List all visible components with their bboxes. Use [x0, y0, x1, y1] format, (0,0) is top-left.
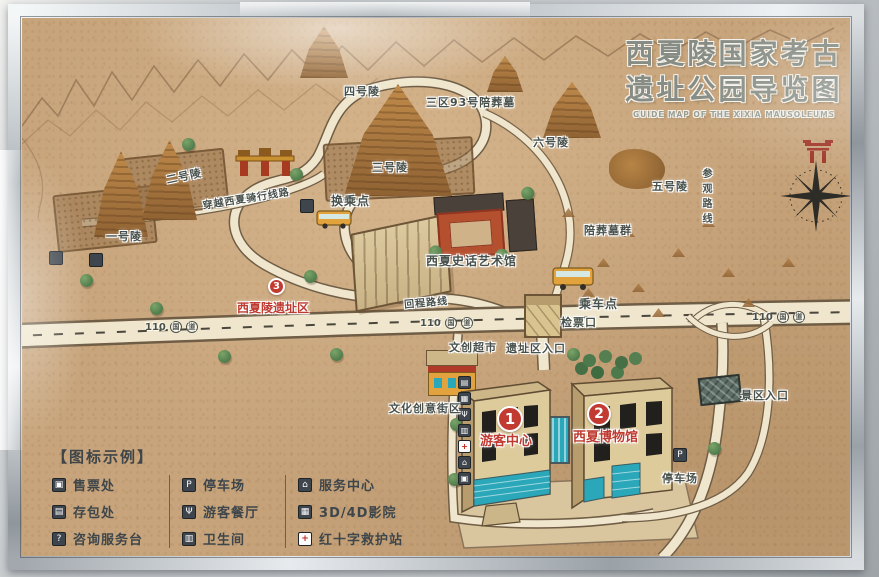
legend-label: 红十字救护站 — [319, 529, 403, 548]
shuttle-bus-transfer — [316, 206, 352, 230]
marker-3-mausoleum-area: 3 — [268, 278, 285, 295]
label-visitor-center: 游客中心 — [480, 430, 532, 449]
legend-label: 咨询服务台 — [73, 529, 143, 548]
cinema-icon: ▦ — [298, 505, 312, 519]
label-tomb6: 六号陵 — [533, 134, 569, 150]
highway-shield-dao: 道 — [461, 317, 473, 329]
tree — [330, 348, 343, 361]
visitor-center-facility-strip: ▤ ▦ Ψ ▥ + ⌂ ▣ — [458, 376, 471, 485]
highway-shield-dao: 道 — [793, 311, 805, 323]
label-mausoleum-area: 西夏陵遗址区 — [237, 299, 309, 316]
service-center-icon: ⌂ — [298, 478, 312, 492]
legend-label: 停车场 — [203, 475, 245, 494]
label-parking: 停车场 — [662, 470, 698, 486]
map-title-line2: 遗址公园导览图 — [612, 72, 850, 108]
label-tomb5: 五号陵 — [652, 178, 688, 194]
highway-110-shield: 110 国 道 — [752, 311, 805, 323]
legend-label: 服务中心 — [319, 475, 375, 494]
ticket-office-icon: ▣ — [458, 472, 471, 485]
legend-item-information-desk: ? 咨询服务台 — [52, 529, 143, 548]
marker-1-visitor-center: 1 — [497, 406, 523, 432]
highway-number: 110 — [752, 312, 773, 323]
label-ticket-gate: 检票口 — [561, 314, 597, 330]
xixia-museum-building — [564, 368, 679, 523]
tree — [218, 350, 231, 363]
first-aid-icon: + — [298, 532, 312, 546]
map-title-line1: 西夏陵国家考古 — [612, 36, 850, 72]
first-aid-icon: + — [458, 440, 471, 453]
legend-column-2: P 停车场 Ψ 游客餐厅 ▥ 卫生间 — [169, 475, 271, 548]
scenic-entrance-gate — [698, 374, 743, 406]
legend-item-restaurant: Ψ 游客餐厅 — [182, 502, 259, 521]
label-tomb3: 三号陵 — [372, 159, 408, 175]
highway-shield-guo: 国 — [170, 321, 182, 333]
legend-item-parking: P 停车场 — [182, 475, 259, 494]
legend-label: 3D/4D影院 — [319, 502, 396, 521]
marker-2-museum: 2 — [587, 402, 611, 426]
tree — [708, 442, 721, 455]
parking-icon: P — [182, 478, 196, 492]
legend-grid: ▣ 售票处 ▤ 存包处 ? 咨询服务台 P 停车场 — [52, 475, 415, 548]
restaurant-icon: Ψ — [182, 505, 196, 519]
information-desk-icon: ? — [52, 532, 66, 546]
label-history-art-hall: 西夏史话艺术馆 — [426, 252, 517, 269]
legend-label: 存包处 — [73, 502, 115, 521]
label-satellite-tombs: 陪葬墓群 — [584, 222, 632, 238]
tree — [80, 274, 93, 287]
baggage-storage-icon: ▤ — [52, 505, 66, 519]
ticket-office-icon: ▣ — [52, 478, 66, 492]
legend-item-ticket-office: ▣ 售票处 — [52, 475, 143, 494]
tree — [150, 302, 163, 315]
shuttle-bus-boarding — [552, 262, 594, 292]
legend-item-restroom: ▥ 卫生间 — [182, 529, 259, 548]
legend-item-service-center: ⌂ 服务中心 — [298, 475, 403, 494]
highway-shield-guo: 国 — [777, 311, 789, 323]
restroom-icon: ▥ — [458, 424, 471, 437]
label-site-entrance: 遗址区入口 — [506, 340, 566, 356]
compass-rose — [778, 158, 850, 234]
label-transfer-point: 换乘点 — [331, 192, 370, 209]
highway-shield-guo: 国 — [445, 317, 457, 329]
legend-item-first-aid: + 红十字救护站 — [298, 529, 403, 548]
facility-icon — [49, 251, 63, 265]
label-tour-route: 参观路线 — [698, 168, 713, 228]
tree — [182, 138, 195, 151]
legend-header: 【图标示例】 — [52, 446, 415, 467]
framed-guide-map-photo: ▤ ▦ Ψ ▥ + ⌂ ▣ P 西夏陵国家考古 遗址公园导览图 GUIDE MA… — [0, 0, 879, 577]
tree-grove-entrance — [567, 348, 580, 361]
service-center-icon: ⌂ — [458, 456, 471, 469]
label-creative-street: 文化创意街区 — [389, 400, 461, 416]
tree — [304, 270, 317, 283]
label-tomb1: 一号陵 — [106, 228, 142, 244]
highway-110-shield: 110 国 道 — [145, 321, 198, 333]
restroom-icon: ▥ — [182, 532, 196, 546]
legend: 【图标示例】 ▣ 售票处 ▤ 存包处 ? 咨询服务台 — [52, 446, 415, 548]
highway-number: 110 — [420, 318, 441, 329]
legend-label: 售票处 — [73, 475, 115, 494]
legend-item-cinema: ▦ 3D/4D影院 — [298, 502, 403, 521]
label-scenic-entrance: 景区入口 — [741, 387, 789, 403]
tomb2-gate — [234, 146, 296, 178]
label-tomb4: 四号陵 — [344, 83, 380, 99]
legend-label: 卫生间 — [203, 529, 245, 548]
map-title-english: GUIDE MAP OF THE XIXIA MAUSOLEUMS — [612, 110, 850, 119]
baggage-storage-icon: ▤ — [458, 376, 471, 389]
facility-icon — [300, 199, 314, 213]
highway-shield-dao: 道 — [186, 321, 198, 333]
label-boarding-point: 乘车点 — [579, 295, 618, 312]
label-creative-supermarket: 文创超市 — [449, 339, 497, 355]
highway-number: 110 — [145, 322, 166, 333]
visitor-center-building — [456, 374, 556, 529]
map-title: 西夏陵国家考古 遗址公园导览图 GUIDE MAP OF THE XIXIA M… — [612, 36, 850, 119]
parking-icon: P — [673, 448, 687, 462]
legend-label: 游客餐厅 — [203, 502, 259, 521]
ticket-gate-kiosk — [524, 294, 562, 338]
legend-column-1: ▣ 售票处 ▤ 存包处 ? 咨询服务台 — [52, 475, 155, 548]
legend-column-3: ⌂ 服务中心 ▦ 3D/4D影院 + 红十字救护站 — [285, 475, 415, 548]
guide-map: ▤ ▦ Ψ ▥ + ⌂ ▣ P 西夏陵国家考古 遗址公园导览图 GUIDE MA… — [22, 18, 850, 556]
red-pavilion-icon — [801, 139, 835, 165]
label-zone3-tomb93: 三区93号陪葬墓 — [426, 94, 515, 110]
facility-icon — [89, 253, 103, 267]
highway-110-shield: 110 国 道 — [420, 317, 473, 329]
legend-item-baggage-storage: ▤ 存包处 — [52, 502, 143, 521]
label-museum: 西夏博物馆 — [573, 426, 638, 445]
